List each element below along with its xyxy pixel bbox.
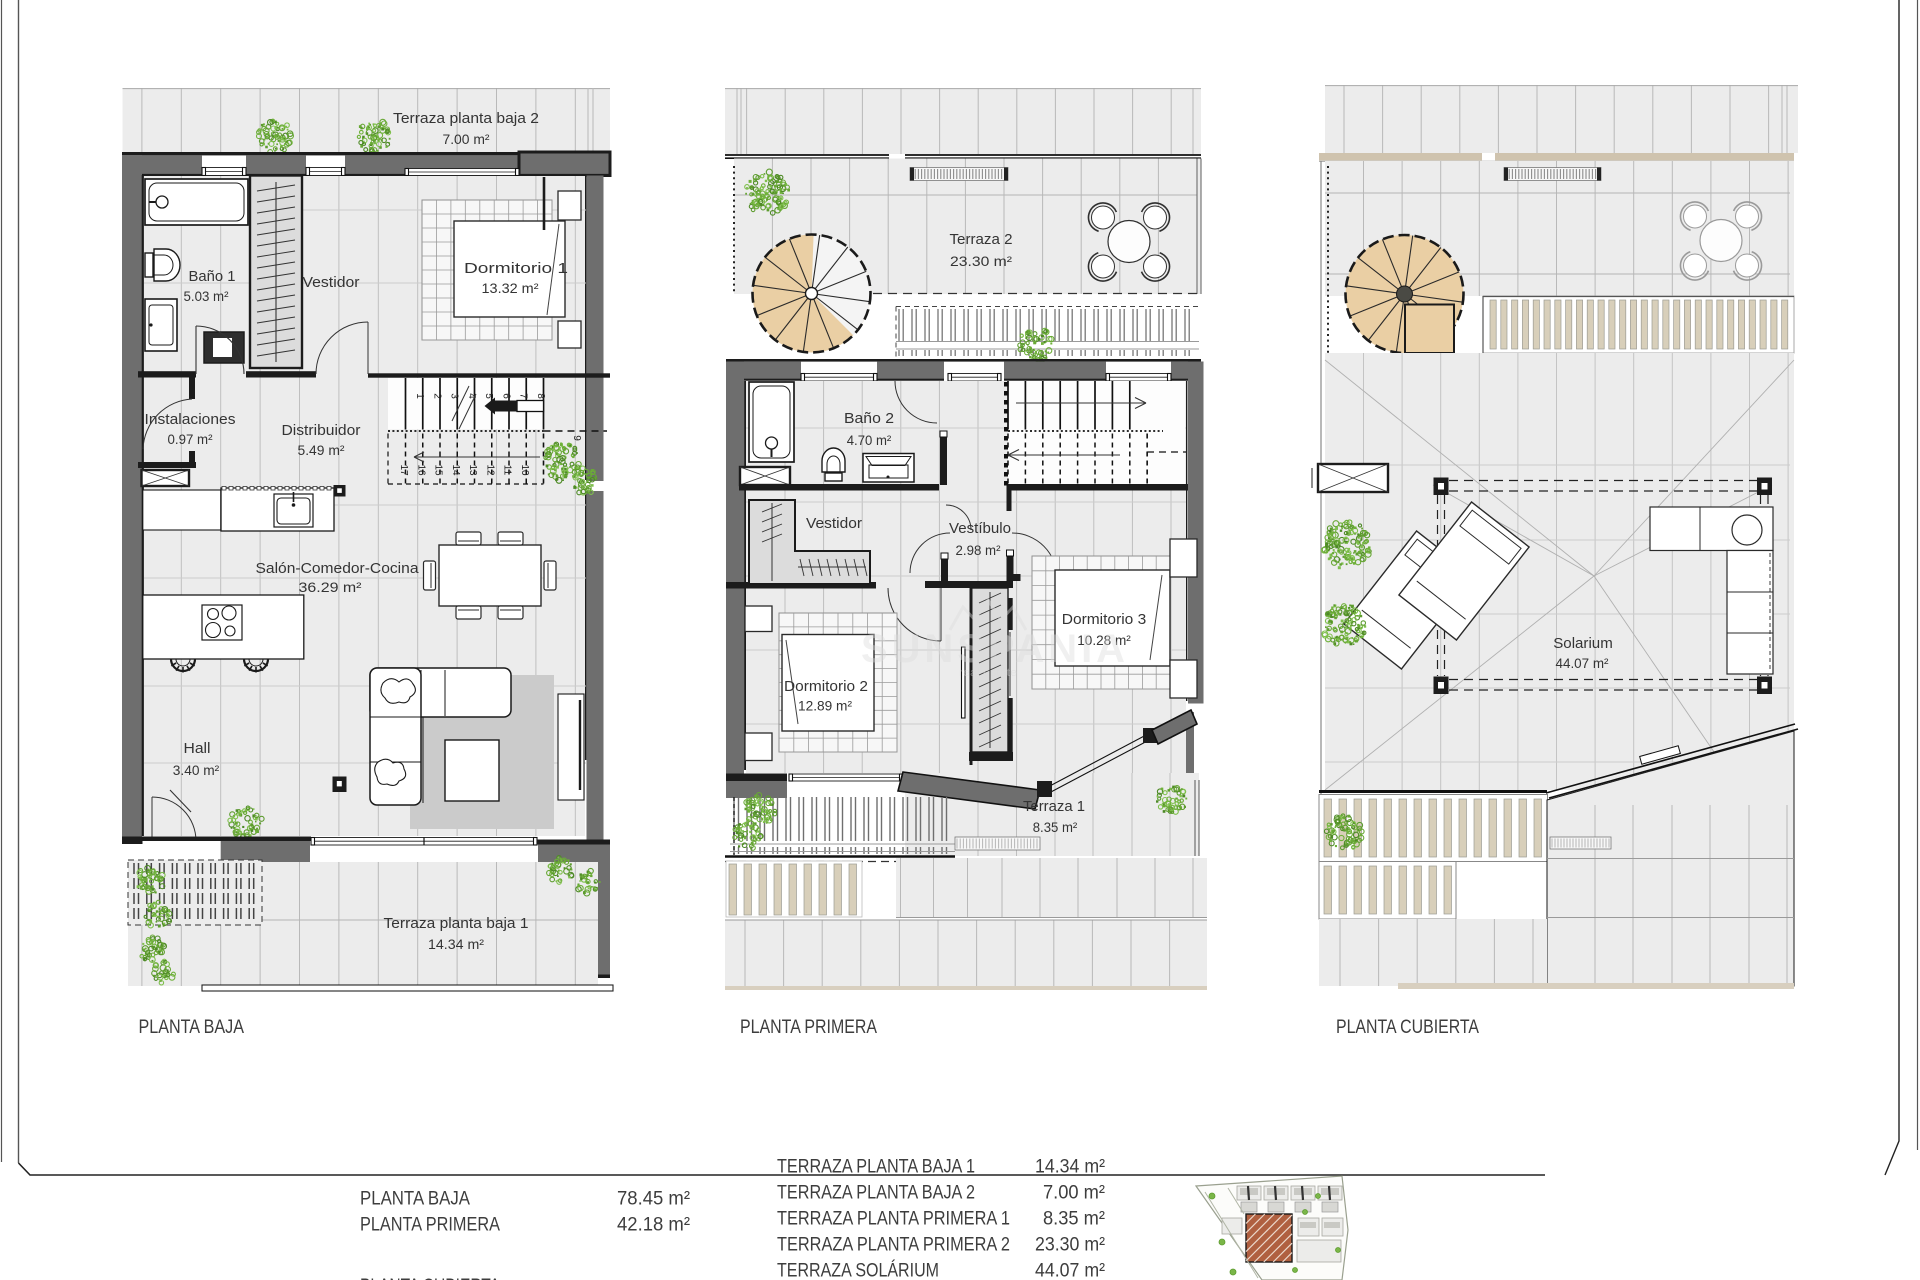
svg-text:Distribuidor: Distribuidor: [282, 422, 361, 439]
svg-text:14: 14: [450, 464, 461, 476]
svg-text:Vestidor: Vestidor: [303, 274, 360, 291]
svg-text:8: 8: [535, 393, 546, 399]
svg-text:7.00 m²: 7.00 m²: [1043, 1183, 1105, 1204]
svg-text:TERRAZA PLANTA BAJA 1: TERRAZA PLANTA BAJA 1: [777, 1157, 975, 1178]
svg-text:12: 12: [484, 464, 495, 476]
svg-text:Dormitorio 3: Dormitorio 3: [1062, 611, 1147, 628]
svg-text:Terraza planta baja 1: Terraza planta baja 1: [384, 915, 529, 932]
svg-text:Dormitorio 2: Dormitorio 2: [784, 678, 868, 695]
svg-text:3: 3: [449, 393, 460, 399]
svg-text:5.49 m²: 5.49 m²: [298, 442, 345, 458]
svg-text:9: 9: [571, 435, 582, 441]
svg-text:44.07 m²: 44.07 m²: [1556, 655, 1609, 671]
svg-text:real estate: real estate: [959, 667, 1017, 679]
svg-text:Baño 2: Baño 2: [844, 410, 894, 427]
svg-text:13: 13: [467, 464, 478, 476]
svg-text:Terraza planta baja 2: Terraza planta baja 2: [393, 110, 539, 127]
svg-text:Hall: Hall: [184, 740, 211, 757]
svg-text:23.30 m²: 23.30 m²: [950, 253, 1012, 269]
svg-text:TERRAZA PLANTA PRIMERA 2: TERRAZA PLANTA PRIMERA 2: [777, 1235, 1010, 1256]
svg-text:PLANTA CUBIERTA: PLANTA CUBIERTA: [360, 1276, 500, 1280]
svg-text:5: 5: [483, 393, 494, 399]
svg-text:PLANTA BAJA: PLANTA BAJA: [360, 1189, 470, 1210]
svg-text:42.18 m²: 42.18 m²: [617, 1215, 690, 1236]
svg-text:23.30 m²: 23.30 m²: [1035, 1235, 1105, 1256]
svg-text:36.29 m²: 36.29 m²: [299, 579, 362, 595]
svg-text:PLANTA PRIMERA: PLANTA PRIMERA: [360, 1215, 500, 1236]
svg-text:Instalaciones: Instalaciones: [145, 411, 236, 428]
svg-text:7: 7: [518, 393, 529, 399]
svg-text:PLANTA PRIMERA: PLANTA PRIMERA: [740, 1017, 877, 1038]
svg-text:TERRAZA PLANTA BAJA 2: TERRAZA PLANTA BAJA 2: [777, 1183, 975, 1204]
svg-text:PLANTA CUBIERTA: PLANTA CUBIERTA: [1336, 1017, 1479, 1038]
svg-text:Vestíbulo: Vestíbulo: [949, 520, 1011, 537]
svg-text:2: 2: [431, 393, 442, 399]
svg-text:13.32 m²: 13.32 m²: [482, 280, 539, 296]
svg-text:TERRAZA SOLÁRIUM: TERRAZA SOLÁRIUM: [777, 1261, 939, 1280]
svg-text:2.98 m²: 2.98 m²: [956, 542, 1001, 558]
svg-text:4.70 m²: 4.70 m²: [847, 432, 892, 448]
svg-text:Terraza 2: Terraza 2: [950, 231, 1013, 248]
svg-text:PLANTA BAJA: PLANTA BAJA: [139, 1017, 245, 1038]
svg-text:14.34 m²: 14.34 m²: [428, 936, 484, 952]
svg-text:Terraza 1: Terraza 1: [1023, 798, 1085, 815]
svg-text:12.89 m²: 12.89 m²: [798, 698, 852, 714]
svg-text:0.97 m²: 0.97 m²: [168, 431, 213, 447]
svg-text:Dormitorio 1: Dormitorio 1: [464, 260, 568, 277]
svg-text:8.35 m²: 8.35 m²: [1043, 1209, 1105, 1230]
svg-text:3.40 m²: 3.40 m²: [173, 762, 220, 778]
svg-text:11: 11: [502, 465, 513, 476]
svg-text:17: 17: [398, 464, 409, 476]
svg-text:16: 16: [415, 464, 426, 476]
svg-text:Baño 1: Baño 1: [189, 268, 236, 285]
svg-text:SUNSPANIA: SUNSPANIA: [861, 627, 1129, 671]
svg-text:TERRAZA PLANTA PRIMERA 1: TERRAZA PLANTA PRIMERA 1: [777, 1209, 1010, 1230]
svg-text:15: 15: [433, 464, 444, 476]
svg-text:Salón-Comedor-Cocina: Salón-Comedor-Cocina: [256, 560, 420, 577]
svg-text:78.45 m²: 78.45 m²: [617, 1189, 690, 1210]
svg-text:14.34 m²: 14.34 m²: [1035, 1157, 1105, 1178]
svg-text:8.35 m²: 8.35 m²: [1033, 819, 1078, 835]
svg-text:Vestidor: Vestidor: [806, 515, 862, 532]
svg-text:5.03 m²: 5.03 m²: [184, 288, 229, 304]
svg-text:10: 10: [519, 464, 530, 476]
svg-text:1: 1: [414, 393, 425, 399]
svg-text:6: 6: [500, 393, 511, 399]
svg-text:7.00 m²: 7.00 m²: [443, 131, 490, 147]
svg-text:Solarium: Solarium: [1553, 635, 1613, 652]
svg-text:44.07 m²: 44.07 m²: [1035, 1261, 1105, 1280]
